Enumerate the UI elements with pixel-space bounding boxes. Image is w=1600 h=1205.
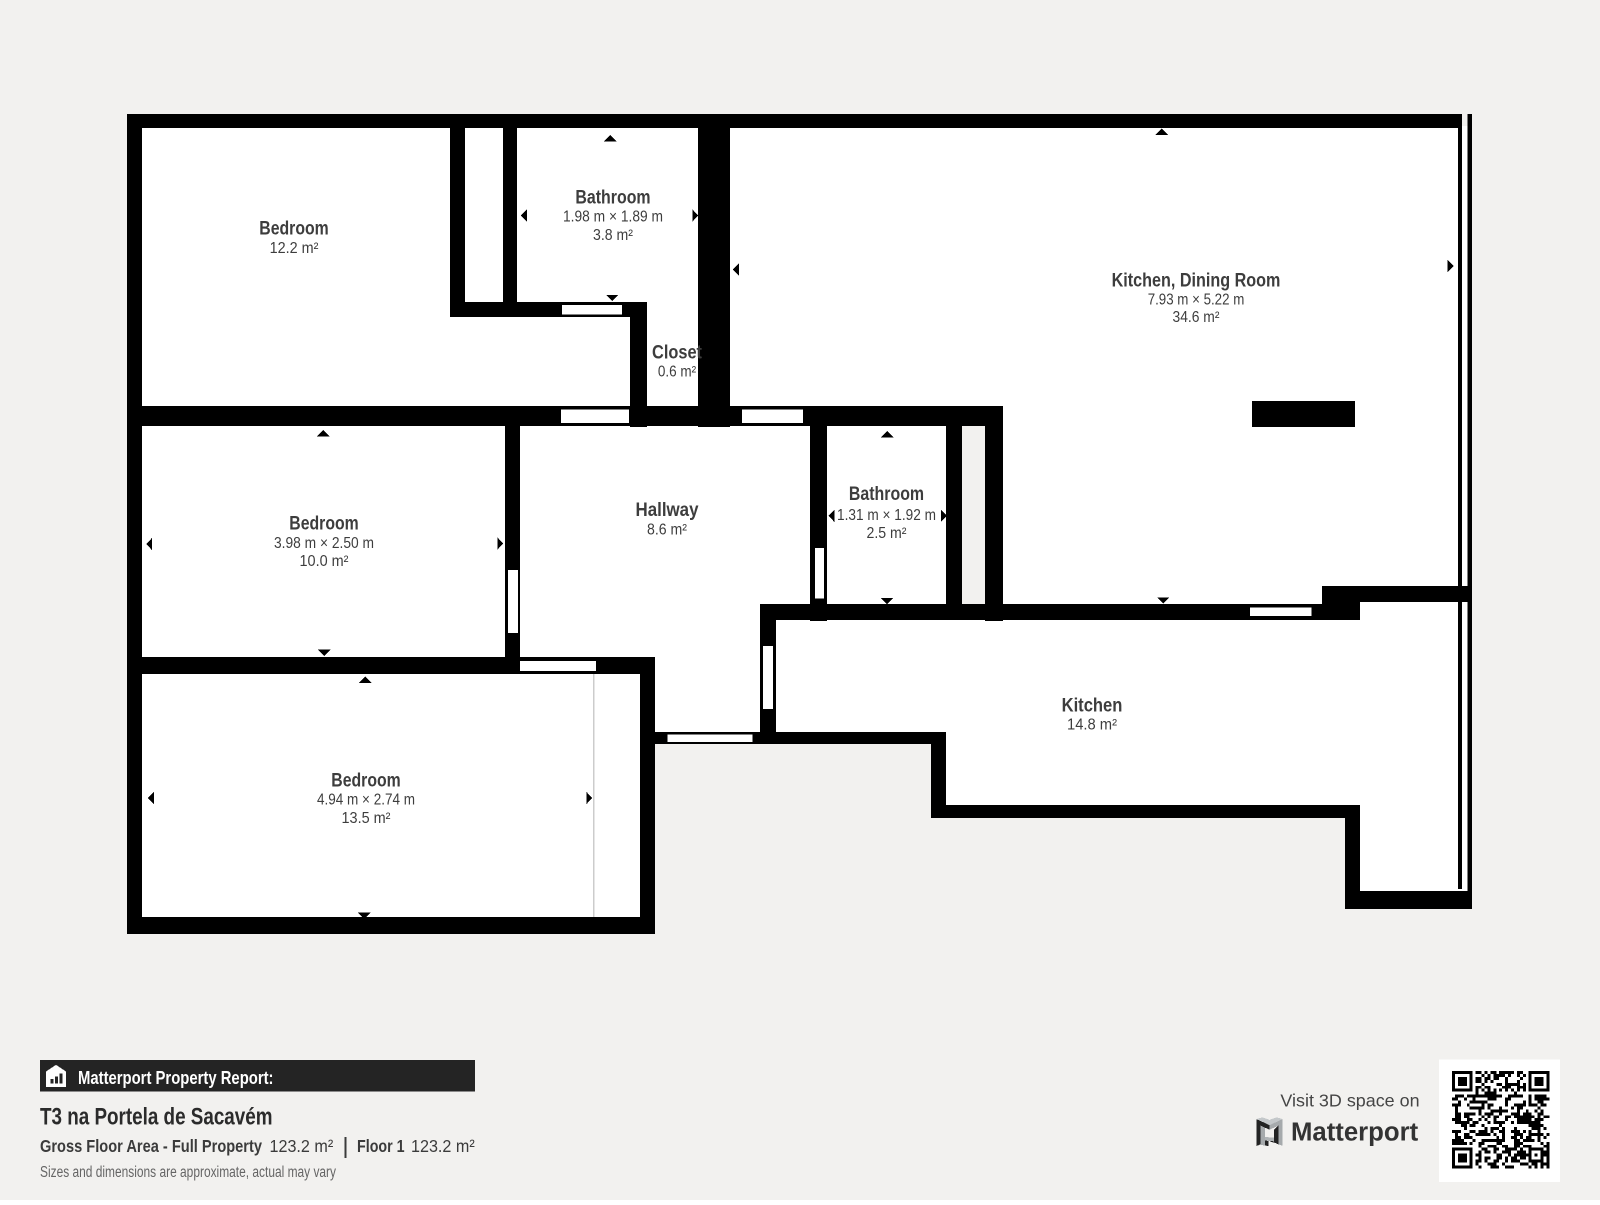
svg-text:Bedroom: Bedroom <box>331 770 400 791</box>
svg-text:10.0 m²: 10.0 m² <box>300 553 349 570</box>
svg-text:Bathroom: Bathroom <box>575 187 650 208</box>
svg-text:Bedroom: Bedroom <box>289 514 358 535</box>
svg-text:Closet: Closet <box>652 342 703 363</box>
svg-text:3.98 m × 2.50 m: 3.98 m × 2.50 m <box>274 535 374 552</box>
svg-text:2.5 m²: 2.5 m² <box>867 525 907 542</box>
svg-text:34.6 m²: 34.6 m² <box>1173 309 1220 326</box>
svg-text:1.98 m × 1.89 m: 1.98 m × 1.89 m <box>563 209 663 226</box>
svg-text:123.2 m²: 123.2 m² <box>411 1136 475 1156</box>
svg-text:Kitchen, Dining Room: Kitchen, Dining Room <box>1112 271 1281 292</box>
svg-text:12.2 m²: 12.2 m² <box>270 240 319 257</box>
svg-text:123.2 m²: 123.2 m² <box>270 1136 334 1156</box>
svg-text:0.6 m²: 0.6 m² <box>658 364 696 381</box>
svg-text:Visit 3D space on: Visit 3D space on <box>1280 1091 1419 1111</box>
svg-text:4.94 m × 2.74 m: 4.94 m × 2.74 m <box>317 792 415 809</box>
svg-text:Hallway: Hallway <box>636 500 699 521</box>
svg-text:Bedroom: Bedroom <box>259 218 328 239</box>
svg-text:Matterport Property Report:: Matterport Property Report: <box>78 1067 274 1088</box>
svg-text:Matterport: Matterport <box>1291 1118 1419 1146</box>
svg-text:3.8 m²: 3.8 m² <box>593 227 633 244</box>
svg-text:1.31 m × 1.92 m: 1.31 m × 1.92 m <box>837 507 936 524</box>
svg-text:13.5 m²: 13.5 m² <box>342 810 391 827</box>
svg-text:Gross Floor Area - Full Proper: Gross Floor Area - Full Property <box>40 1136 262 1156</box>
svg-text:7.93 m × 5.22 m: 7.93 m × 5.22 m <box>1148 292 1245 309</box>
svg-text:14.8 m²: 14.8 m² <box>1067 717 1117 734</box>
svg-text:T3 na Portela de Sacavém: T3 na Portela de Sacavém <box>40 1104 273 1131</box>
svg-text:Kitchen: Kitchen <box>1062 695 1123 716</box>
svg-text:Bathroom: Bathroom <box>849 484 924 505</box>
svg-text:Sizes and dimensions are appro: Sizes and dimensions are approximate, ac… <box>40 1164 336 1181</box>
svg-text:Floor 1: Floor 1 <box>357 1136 405 1156</box>
svg-text:8.6 m²: 8.6 m² <box>647 522 687 539</box>
